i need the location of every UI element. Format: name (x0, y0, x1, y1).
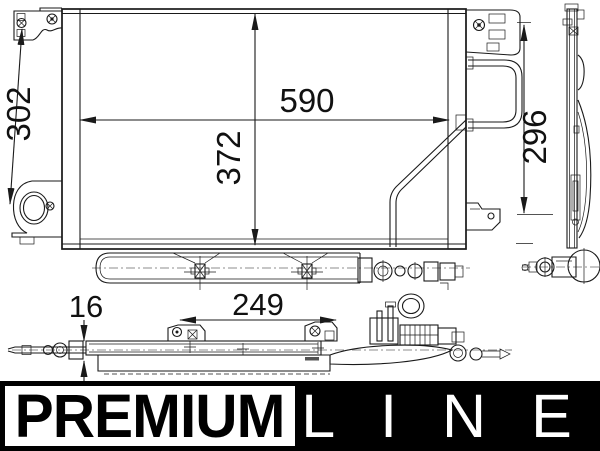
dim-right-height-label: 296 (516, 109, 553, 164)
dim-right-height: 296 (516, 23, 553, 215)
bottom-bracket-1 (168, 325, 205, 341)
technical-drawing: 590 372 302 296 16 249 (0, 0, 600, 382)
dim-drier-offset: 249 (180, 287, 336, 322)
condenser-drawing-page: 590 372 302 296 16 249 (0, 0, 600, 451)
premium-text: PREMIUM (15, 386, 285, 447)
bottom-left-bracket (12, 181, 62, 244)
receiver-drier (92, 253, 470, 290)
bottom-right-assembly (330, 294, 510, 364)
premium-line-logo: PREMIUM LINE (0, 381, 600, 451)
line-box: LINE (300, 381, 600, 451)
drier-valve-1 (184, 256, 216, 290)
diagonal-pipe (390, 115, 466, 247)
drier-fittings (358, 258, 463, 290)
top-right-bracket (466, 10, 520, 55)
front-view (12, 8, 533, 249)
dim-left-height-label: 302 (0, 86, 37, 141)
side-drier-end (522, 248, 600, 284)
dim-tube-thickness-label: 16 (69, 289, 103, 324)
dim-core-height-label: 372 (210, 130, 247, 185)
dim-front-width-label: 590 (279, 82, 334, 119)
dim-core-height: 372 (210, 14, 255, 245)
hose-loop (466, 57, 522, 131)
dim-front-width: 590 (80, 82, 449, 120)
dim-drier-offset-label: 249 (232, 287, 284, 322)
drier-valve-2 (291, 256, 323, 290)
premium-box: PREMIUM (0, 381, 300, 451)
bottom-right-bracket (466, 203, 500, 230)
dim-left-height: 302 (0, 29, 37, 204)
line-text: LINE (300, 386, 600, 447)
bottom-bracket-2 (305, 322, 337, 341)
left-tank (62, 9, 80, 249)
